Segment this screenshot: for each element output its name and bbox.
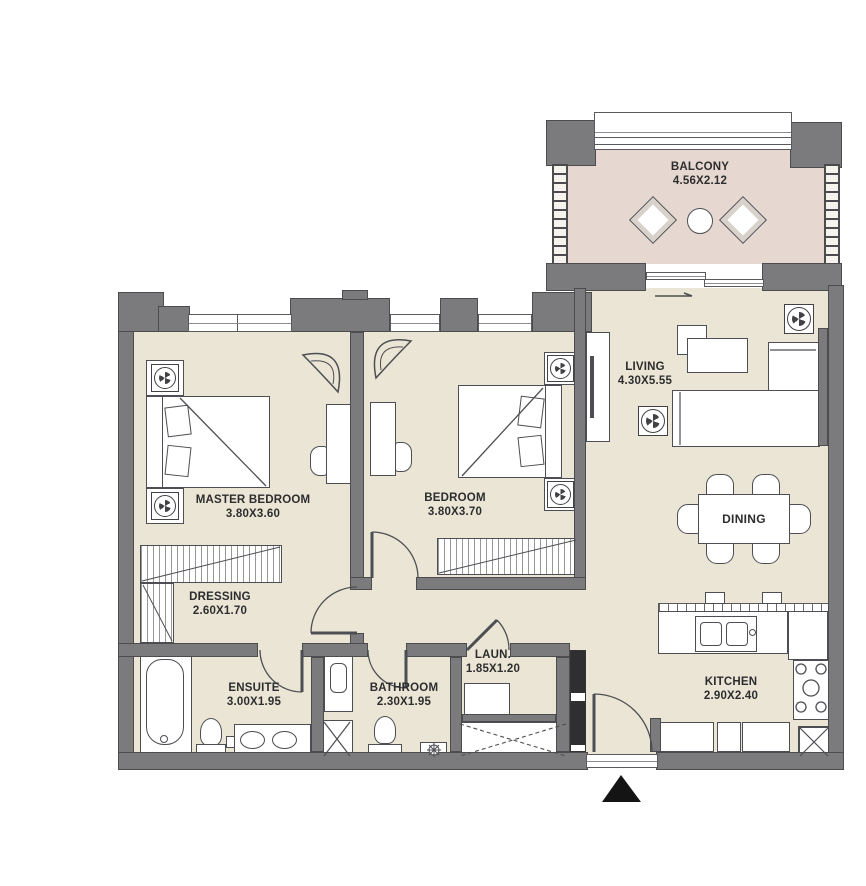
desk-chair [395, 442, 412, 472]
master-bedroom-window [188, 314, 292, 332]
tv [590, 356, 594, 418]
ceiling-speaker-icon [547, 481, 574, 508]
room-dims: 4.30X5.55 [595, 375, 695, 389]
wall-master-bedroom2 [350, 332, 364, 590]
glass-line [595, 137, 791, 138]
dining-chair [752, 541, 780, 564]
room-dims: 3.80X3.60 [183, 508, 323, 522]
wall-living-left [574, 288, 586, 590]
dining-chair [677, 504, 700, 534]
stove [793, 660, 830, 720]
ceiling-speaker-icon [151, 492, 179, 520]
sink-bowl [272, 731, 297, 749]
ceiling-speaker-icon [784, 304, 814, 334]
dining-chair [706, 541, 734, 564]
desk-chair [310, 446, 327, 476]
label-bathroom: BATHROOM 2.30X1.95 [344, 682, 464, 709]
label-balcony: BALCONY 4.56X2.12 [630, 161, 770, 188]
room-name: ENSUITE [194, 682, 314, 696]
wall-laundry-closet-divider [462, 714, 556, 722]
wall-corridor-b [302, 643, 368, 657]
toilet [374, 716, 396, 744]
dressing-wardrobe-top [140, 545, 282, 583]
bathtub-inner [146, 659, 184, 745]
master-desk [326, 404, 352, 484]
services-shaft [570, 650, 586, 752]
kitchen-counter-bottom-1 [656, 722, 714, 752]
entry-marker [602, 775, 641, 802]
pillow [164, 445, 191, 477]
ceiling-speaker-icon [547, 355, 574, 382]
pillow [164, 405, 191, 438]
drain [160, 735, 168, 743]
room-name: LIVING [595, 361, 695, 375]
room-name: KITCHEN [671, 676, 791, 690]
room-dims: 2.90X2.40 [671, 690, 791, 704]
balcony-bottom-wall-left [546, 263, 646, 291]
wall-laundry-right [556, 657, 570, 752]
label-laundry: LAUN. 1.85X1.20 [443, 649, 543, 676]
label-dressing: DRESSING 2.60X1.70 [160, 591, 280, 618]
bathtub [140, 652, 192, 758]
balcony-railing-right [824, 164, 840, 264]
room-dims: 3.80X3.70 [395, 506, 515, 520]
balcony-corner-block-right [790, 122, 842, 168]
window-mullion [237, 315, 238, 331]
coffee-table-large [687, 338, 748, 373]
dining-table: DINING [698, 494, 790, 544]
room-name: BALCONY [630, 161, 770, 175]
ceiling-speaker-icon [151, 364, 179, 392]
faucet [749, 629, 756, 636]
label-kitchen: KITCHEN 2.90X2.40 [671, 676, 791, 703]
bedroom-bed [458, 385, 562, 478]
room-name: BEDROOM [395, 492, 515, 506]
pillow [517, 435, 544, 467]
room-name: LAUN. [443, 649, 543, 663]
wall-bedroom2-bottom-a [350, 577, 372, 590]
exterior-wall-right [828, 285, 844, 770]
kitchen-sink [695, 616, 757, 652]
balcony-round-table [687, 208, 713, 234]
ceiling-speaker-icon [638, 406, 668, 436]
room-dims: 2.60X1.70 [160, 605, 280, 619]
room-dims: 1.85X1.20 [443, 663, 543, 677]
headboard [147, 397, 163, 487]
exterior-wall-bottom-right [656, 752, 844, 770]
floor-plan: DINING [0, 0, 866, 886]
sofa-section-horizontal [672, 390, 820, 447]
sliding-door-panel-1 [646, 272, 706, 280]
bedroom-wardrobe [437, 538, 578, 575]
kitchen-counter-right [788, 611, 828, 660]
room-dims: 3.00X1.95 [194, 696, 314, 710]
exterior-pier-between-bedrooms [290, 298, 390, 332]
label-ensuite: ENSUITE 3.00X1.95 [194, 682, 314, 709]
room-dims: 2.30X1.95 [344, 696, 464, 710]
exterior-pier-step [342, 290, 368, 300]
dining-label: DINING [699, 495, 789, 543]
kitchen-counter-bottom-3 [742, 722, 790, 752]
balcony-railing-left [552, 164, 568, 264]
bedroom-window-2 [478, 314, 532, 332]
bedroom-window-1 [390, 314, 440, 332]
room-name: MASTER BEDROOM [183, 494, 323, 508]
label-living: LIVING 4.30X5.55 [595, 361, 695, 388]
room-name: BATHROOM [344, 682, 464, 696]
exterior-corner-top-left-step [158, 306, 190, 332]
balcony-glass-panel [594, 112, 792, 150]
counter-stub [705, 592, 725, 604]
wall-pilaster-right [818, 328, 828, 446]
kitchen-counter-bottom-2 [717, 722, 741, 752]
pillow [517, 396, 544, 429]
room-dims: 4.56X2.12 [630, 175, 770, 189]
counter-stub [762, 592, 782, 604]
wall-bedroom2-bottom-b [416, 577, 586, 590]
bedroom-desk [370, 402, 396, 476]
label-master-bedroom: MASTER BEDROOM 3.80X3.60 [183, 494, 323, 521]
exterior-wall-left [118, 292, 134, 770]
dining-chair [788, 504, 811, 534]
wall-corridor-a [118, 643, 258, 657]
sink-bowl [240, 731, 265, 749]
exterior-pier-bedroom [440, 298, 478, 332]
sink-bowl [726, 622, 748, 646]
glass-line [595, 144, 791, 145]
washing-machine [464, 683, 510, 716]
sliding-door-panel-2 [704, 279, 764, 287]
sink-bowl [700, 622, 722, 646]
label-bedroom: BEDROOM 3.80X3.70 [395, 492, 515, 519]
balcony-corner-block-left [546, 120, 596, 166]
exterior-wall-bottom-left [118, 752, 588, 770]
headboard [545, 386, 561, 477]
entrance-threshold [586, 754, 658, 768]
toilet [200, 718, 222, 746]
wall-kitchen-stub [650, 718, 661, 752]
room-name: DRESSING [160, 591, 280, 605]
